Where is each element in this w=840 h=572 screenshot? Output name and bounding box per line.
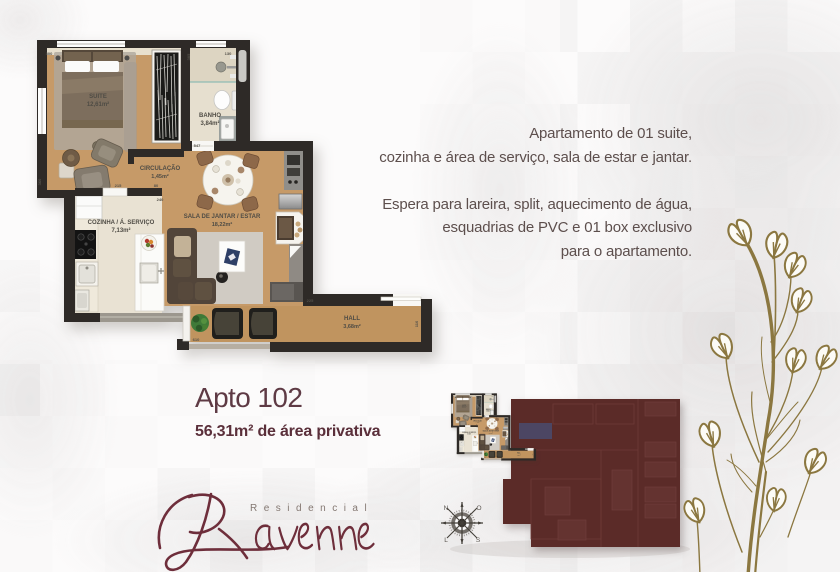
svg-text:1,45m²: 1,45m² [151,173,169,180]
svg-text:HALL: HALL [344,316,360,322]
svg-text:130: 130 [225,51,232,56]
svg-text:110: 110 [414,320,419,327]
svg-text:3,68m²: 3,68m² [343,323,361,330]
svg-text:18,22m²: 18,22m² [212,221,233,228]
svg-text:225: 225 [307,298,314,303]
svg-text:BANHO: BANHO [199,113,221,119]
svg-text:3,84m²: 3,84m² [200,120,219,127]
svg-text:O: O [476,505,481,512]
svg-text:385: 385 [186,53,191,60]
svg-text:12,61m²: 12,61m² [87,101,109,108]
svg-text:7,13m²: 7,13m² [111,227,130,234]
svg-text:610: 610 [193,337,200,342]
svg-text:CIRCULAÇÃO: CIRCULAÇÃO [140,165,181,172]
svg-text:80: 80 [154,183,159,188]
svg-text:COZINHA / Á. SERVIÇO: COZINHA / Á. SERVIÇO [88,219,155,226]
svg-text:N: N [444,505,449,512]
svg-text:547: 547 [194,143,201,148]
svg-text:SALA DE JANTAR / ESTAR: SALA DE JANTAR / ESTAR [184,214,261,220]
svg-text:L: L [444,537,448,544]
svg-text:SUITE: SUITE [89,94,107,100]
svg-text:360: 360 [37,178,42,185]
svg-text:300: 300 [46,51,53,56]
svg-text:240: 240 [157,197,164,202]
svg-text:S: S [476,537,481,544]
svg-text:215: 215 [115,183,122,188]
